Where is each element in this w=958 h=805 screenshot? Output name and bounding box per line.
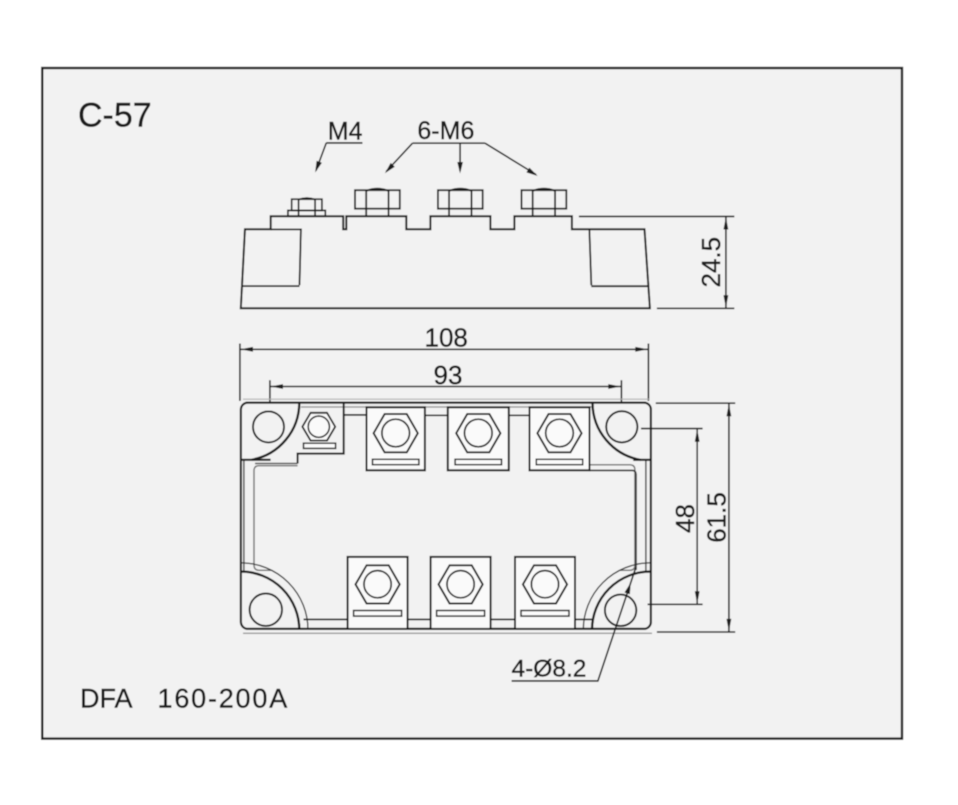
svg-text:DFA: DFA [80,684,133,714]
svg-text:6-M6: 6-M6 [417,117,474,145]
svg-text:61.5: 61.5 [702,492,732,543]
svg-text:93: 93 [434,360,463,390]
svg-text:108: 108 [425,322,468,352]
svg-text:48: 48 [670,504,700,533]
svg-text:M4: M4 [328,118,363,146]
svg-text:C-57: C-57 [78,97,152,135]
svg-text:4-Ø8.2: 4-Ø8.2 [512,656,587,683]
svg-text:24.5: 24.5 [696,237,726,288]
svg-text:160-200A: 160-200A [158,684,290,714]
